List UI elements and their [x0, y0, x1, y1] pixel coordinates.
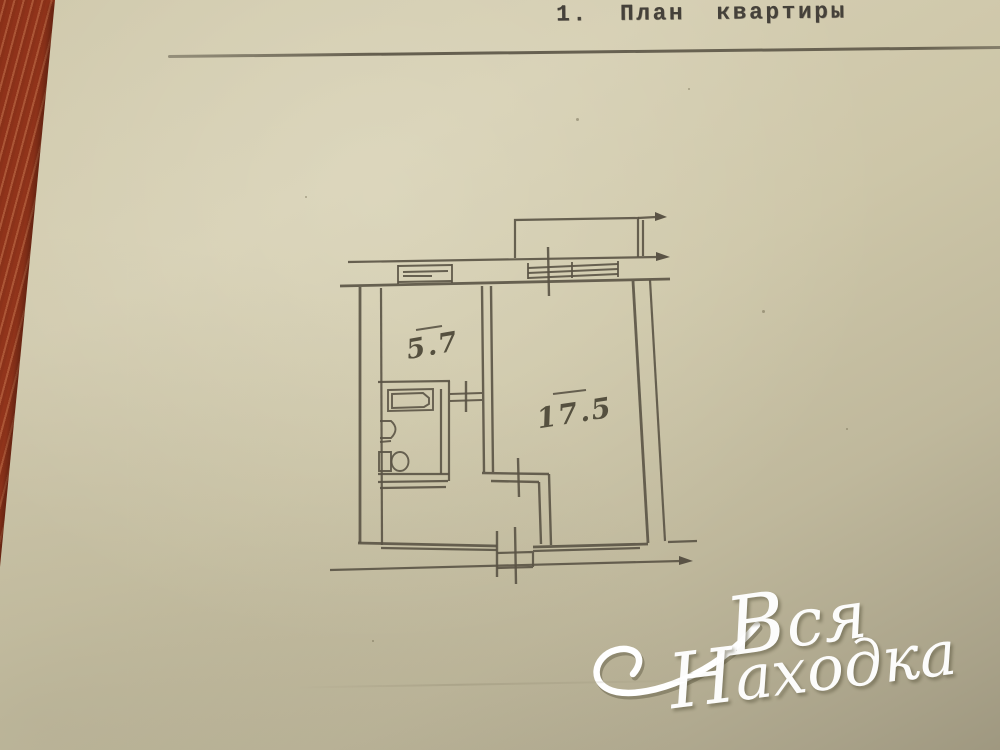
- entrance-door: [497, 527, 533, 584]
- paper-speck: [305, 196, 307, 198]
- room-window: [528, 247, 618, 296]
- top-wall: [340, 252, 670, 286]
- svg-text:17.5: 17.5: [534, 391, 614, 436]
- paper-speck: [372, 640, 374, 642]
- kitchen-area-label: 5.7: [404, 326, 462, 366]
- paper-speck: [846, 428, 848, 430]
- svg-text:5.7: 5.7: [404, 326, 462, 366]
- balcony: [515, 212, 667, 258]
- paper-speck: [576, 118, 579, 121]
- kitchen-window: [398, 264, 452, 284]
- bathtub-icon: [388, 389, 433, 411]
- photo-frame: 1. План квартиры: [0, 0, 1000, 750]
- outer-walls: [358, 280, 697, 551]
- paper-speck: [688, 88, 690, 90]
- toilet-icon: [379, 452, 409, 471]
- paper-speck: [762, 310, 765, 313]
- room-area-label: 17.5: [534, 390, 614, 435]
- room-door: [518, 458, 519, 497]
- kitchen-door: [450, 381, 482, 412]
